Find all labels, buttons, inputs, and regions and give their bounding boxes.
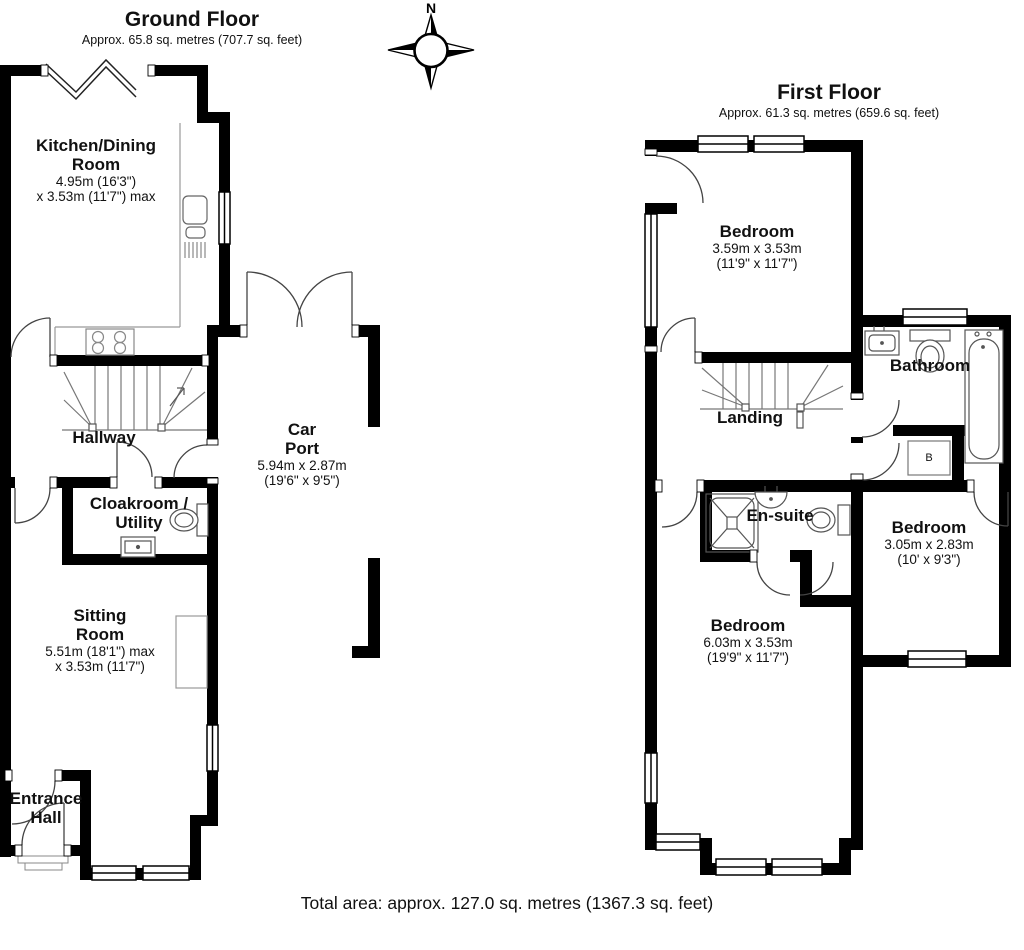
room-name: Kitchen/Dining [36,136,156,155]
ground-floor-subtitle: Approx. 65.8 sq. metres (707.7 sq. feet) [82,33,302,47]
window [92,866,136,880]
bathroom-sink-icon [865,326,899,355]
carport-door-arc [247,272,302,327]
window [207,725,218,771]
first-floor-title: First Floor [777,81,881,104]
carport-door-arc [297,272,352,327]
room-name: Bedroom [712,222,801,241]
room-dims: x 3.53m (11'7") [45,659,154,674]
room-label-bedroom-rear: Bedroom 6.03m x 3.53m (19'9" x 11'7") [703,616,792,665]
room-dims: 5.51m (18'1") max [45,644,154,659]
door-arc [174,445,207,478]
ground-floor-title: Ground Floor [125,8,259,31]
room-name: Sitting [45,606,154,625]
door-arc [661,318,695,352]
room-label-car-port: Car Port 5.94m x 2.87m (19'6" x 9'5") [257,420,346,488]
room-name: Bedroom [884,518,973,537]
break-line-icon [46,60,136,99]
room-name: Hall [10,808,83,827]
window [772,859,822,875]
room-dims: x 3.53m (11'7") max [36,189,156,204]
chimney-breast [176,616,207,688]
window [219,192,230,244]
window [143,866,189,880]
boiler-label: B [925,452,932,464]
room-name: Car [257,420,346,439]
hob-icon [86,329,134,355]
room-label-bathroom: Bathroom [890,356,970,375]
room-label-hallway: Hallway [72,428,135,447]
door-arc [15,488,50,523]
room-dims: (10' x 9'3") [884,552,973,567]
total-area-text: Total area: approx. 127.0 sq. metres (13… [301,894,713,913]
room-dims: 3.05m x 2.83m [884,537,973,552]
room-dims: (19'6" x 9'5") [257,473,346,488]
room-label-entrance-hall: Entrance Hall [10,789,83,827]
room-dims: 3.59m x 3.53m [712,241,801,256]
window [716,859,766,875]
window [645,214,657,327]
compass-icon: N [388,0,474,88]
room-name: Cloakroom / [90,494,188,513]
door-arc [862,443,899,480]
room-dims: 4.95m (16'3") [36,174,156,189]
room-dims: 6.03m x 3.53m [703,635,792,650]
window [903,309,967,325]
room-dims: (11'9" x 11'7") [712,256,801,271]
room-dims: 5.94m x 2.87m [257,458,346,473]
first-walls [645,140,1011,875]
utility-sink-icon [121,537,155,557]
kitchen-sink-icon [183,196,207,258]
room-name: Bedroom [703,616,792,635]
compass-north-label: N [426,0,436,16]
door-arc [757,562,790,595]
first-floor-plan [645,136,1011,875]
window [754,136,804,152]
room-name: Room [36,155,156,174]
door-arc [662,492,697,527]
window [908,651,966,667]
room-name: Entrance [10,789,83,808]
window [698,136,748,152]
floorplan-page: N Ground Floor Approx. 65.8 sq. metres (… [0,0,1024,950]
room-name: Utility [90,513,188,532]
room-label-cloakroom: Cloakroom / Utility [90,494,188,532]
room-label-landing: Landing [717,408,783,427]
room-label-bedroom-right: Bedroom 3.05m x 2.83m (10' x 9'3") [884,518,973,567]
room-name: Port [257,439,346,458]
room-dims: (19'9" x 11'7") [703,650,792,665]
front-door-sill [18,856,68,870]
stairs [62,366,207,431]
first-floor-subtitle: Approx. 61.3 sq. metres (659.6 sq. feet) [719,106,939,120]
room-label-en-suite: En-suite [746,506,813,525]
room-label-kitchen: Kitchen/Dining Room 4.95m (16'3") x 3.53… [36,136,156,204]
door-arc [117,442,152,477]
window [645,753,657,803]
stairs-up-arrow-icon [170,388,184,406]
door-arc [11,318,50,357]
room-name: Room [45,625,154,644]
room-label-sitting-room: Sitting Room 5.51m (18'1") max x 3.53m (… [45,606,154,674]
door-arc [656,156,703,203]
window [656,834,700,850]
bathtub-icon [965,330,1003,463]
room-label-bedroom-front: Bedroom 3.59m x 3.53m (11'9" x 11'7") [712,222,801,271]
